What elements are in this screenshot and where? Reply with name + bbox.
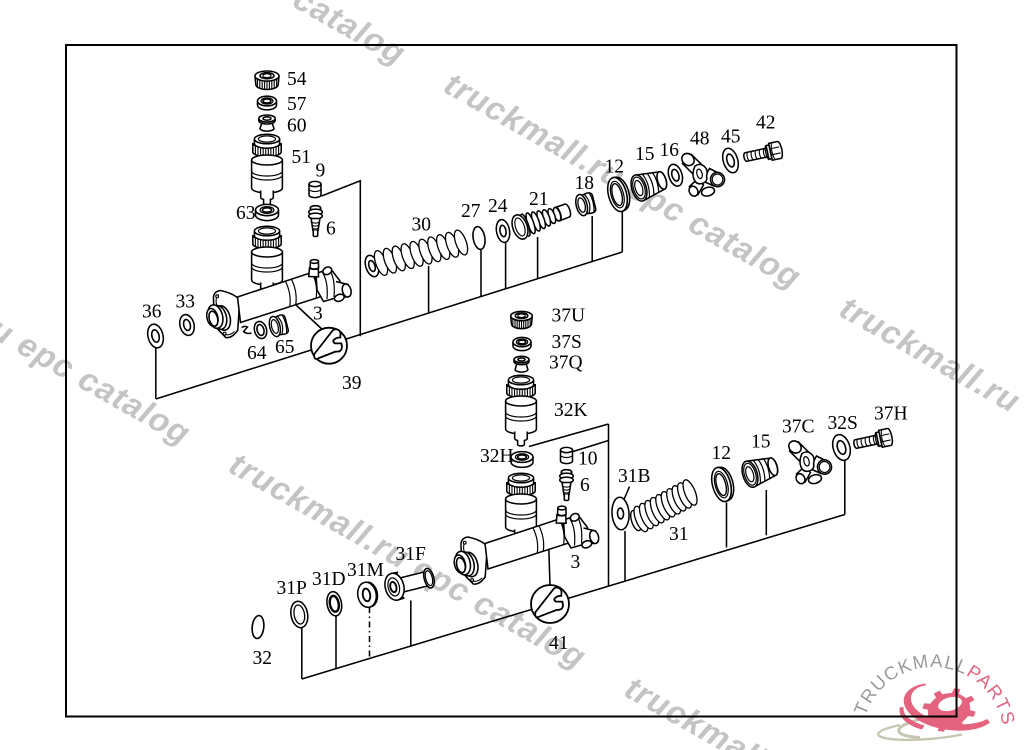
svg-text:41: 41 [549, 633, 569, 654]
svg-text:31B: 31B [618, 466, 651, 487]
svg-text:36: 36 [142, 302, 162, 323]
svg-text:63: 63 [236, 203, 256, 224]
svg-text:30: 30 [412, 215, 432, 236]
svg-text:9: 9 [316, 161, 326, 182]
svg-text:37H: 37H [874, 404, 908, 425]
svg-text:37C: 37C [782, 417, 815, 438]
svg-text:16: 16 [660, 140, 680, 161]
svg-text:60: 60 [287, 116, 307, 137]
svg-text:51: 51 [292, 147, 312, 168]
svg-text:31F: 31F [396, 544, 427, 565]
svg-text:31P: 31P [277, 578, 308, 599]
svg-text:37Q: 37Q [549, 353, 583, 374]
svg-text:32H: 32H [480, 446, 514, 467]
svg-text:18: 18 [575, 173, 595, 194]
svg-text:24: 24 [488, 196, 508, 217]
svg-text:65: 65 [275, 337, 295, 358]
svg-text:48: 48 [690, 129, 710, 150]
svg-text:39: 39 [342, 373, 362, 394]
svg-text:10: 10 [578, 449, 598, 470]
svg-text:32: 32 [253, 648, 273, 669]
svg-text:12: 12 [712, 443, 732, 464]
svg-text:3: 3 [571, 552, 581, 573]
svg-text:12: 12 [605, 157, 625, 178]
svg-text:31M: 31M [347, 560, 384, 581]
svg-text:37S: 37S [552, 332, 582, 353]
svg-text:31: 31 [669, 524, 689, 545]
svg-text:64: 64 [247, 343, 267, 364]
svg-text:15: 15 [635, 144, 655, 165]
svg-text:3: 3 [313, 304, 323, 325]
svg-text:45: 45 [721, 127, 741, 148]
svg-text:37U: 37U [552, 306, 586, 327]
svg-text:54: 54 [287, 69, 307, 90]
svg-text:6: 6 [580, 475, 590, 496]
svg-text:27: 27 [461, 201, 481, 222]
svg-text:32K: 32K [554, 400, 588, 421]
svg-text:21: 21 [529, 189, 549, 210]
svg-text:32S: 32S [828, 413, 858, 434]
svg-text:6: 6 [326, 219, 336, 240]
svg-text:33: 33 [176, 292, 196, 313]
svg-text:42: 42 [756, 113, 776, 134]
svg-text:31D: 31D [312, 569, 346, 590]
svg-text:15: 15 [751, 432, 771, 453]
svg-text:57: 57 [287, 94, 307, 115]
